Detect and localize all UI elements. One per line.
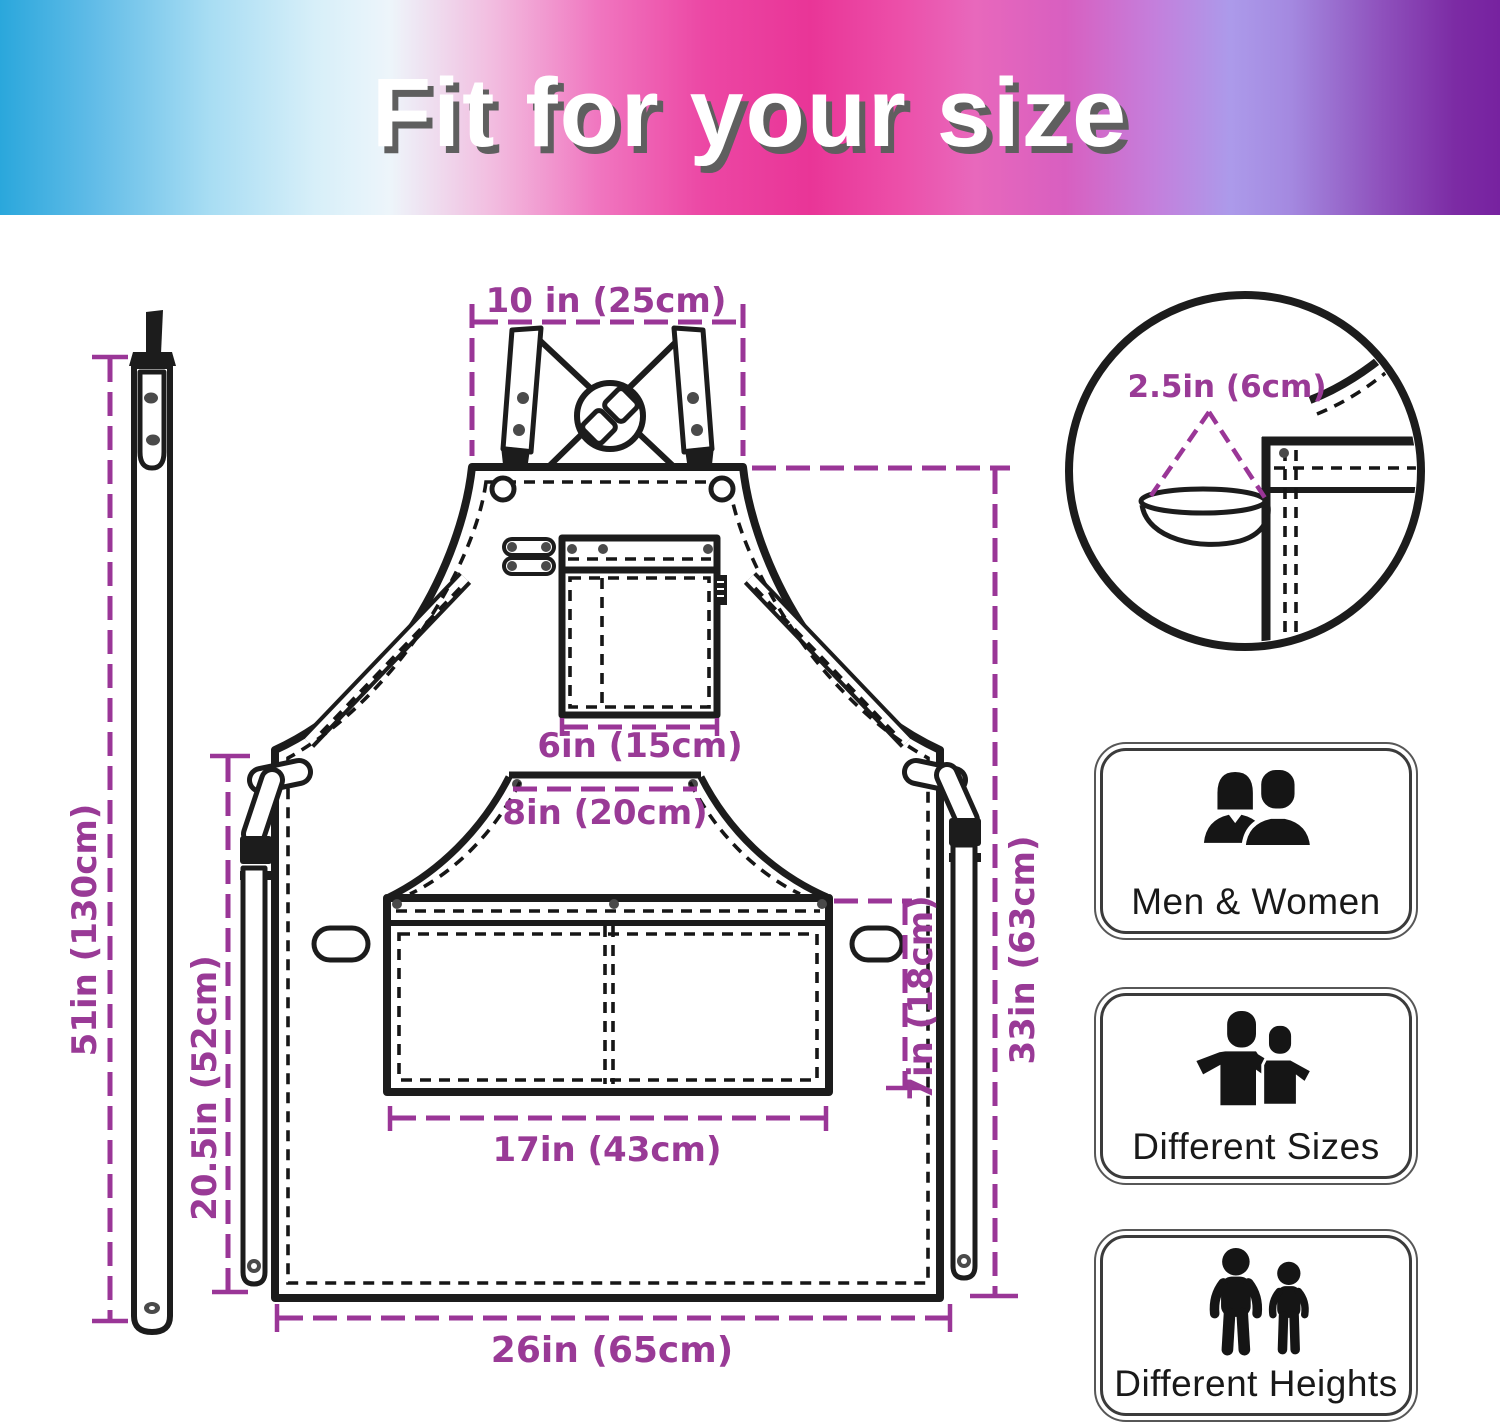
- brand-tag: [714, 575, 727, 605]
- dim-waist-pocket-width-label: 17in (43cm): [493, 1130, 722, 1170]
- dim-top-strap-width-label: 10 in (25cm): [486, 281, 727, 321]
- bib-grommet-left: [492, 478, 514, 500]
- dim-lower-height: 20.5in (52cm): [185, 756, 250, 1292]
- feature-label: Different Heights: [1103, 1363, 1409, 1405]
- dim-apron-width: 26in (65cm): [277, 1304, 950, 1371]
- loop-detail-circle: 2.5in (6cm): [1069, 295, 1428, 648]
- apron-size-diagram: 10 in (25cm): [0, 0, 1500, 1426]
- dim-chest-pocket-width: 6in (15cm): [537, 718, 742, 766]
- dim-chest-pocket-width-label: 6in (15cm): [537, 726, 742, 766]
- neck-strap: [129, 310, 176, 1332]
- dim-waist-pocket-top-width: 8in (20cm): [502, 789, 707, 833]
- dim-neck-strap-length-label: 51in (130cm): [65, 804, 105, 1057]
- cross-straps: [501, 328, 714, 479]
- dim-waist-pocket-top-width-label: 8in (20cm): [502, 793, 707, 833]
- pen-loops: [507, 542, 551, 571]
- dim-neck-strap-length: 51in (130cm): [65, 357, 128, 1321]
- strap-ring: [577, 383, 643, 449]
- men-women-icon: [1194, 761, 1319, 856]
- feature-card-different-sizes: Different Sizes: [1100, 993, 1412, 1179]
- dim-apron-width-label: 26in (65cm): [491, 1330, 733, 1371]
- dim-lower-height-label: 20.5in (52cm): [185, 955, 225, 1221]
- chest-pocket: [562, 538, 727, 715]
- bib-grommet-right: [711, 478, 733, 500]
- dim-waist-pocket-height-label: 7in (18cm): [901, 895, 941, 1100]
- dim-apron-length-label: 33in (63cm): [1003, 836, 1043, 1065]
- dim-loop-size-label: 2.5in (6cm): [1128, 369, 1327, 405]
- feature-label: Different Sizes: [1103, 1126, 1409, 1168]
- different-heights-icon: [1197, 1248, 1315, 1356]
- feature-card-men-women: Men & Women: [1100, 748, 1412, 934]
- side-strap-right: [947, 775, 981, 1278]
- feature-card-different-heights: Different Heights: [1100, 1235, 1412, 1416]
- feature-label: Men & Women: [1103, 881, 1409, 923]
- different-sizes-icon: [1194, 1006, 1319, 1114]
- side-strap-left: [240, 780, 272, 1284]
